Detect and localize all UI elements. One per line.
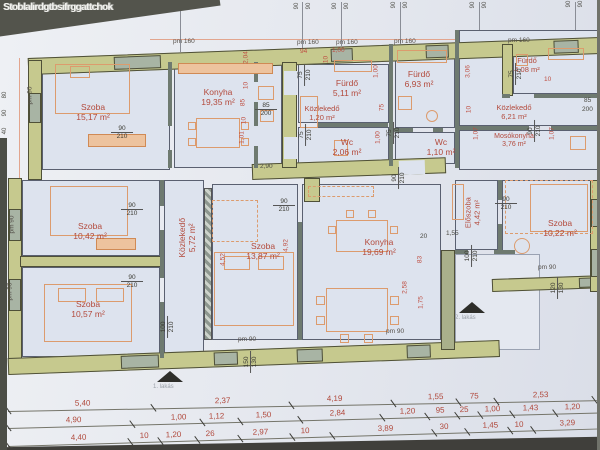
dim: 83 — [417, 248, 424, 272]
partition — [160, 180, 164, 206]
dim: 20 — [420, 233, 427, 240]
apartment-label: 1. lakás — [153, 384, 174, 390]
tick-label: 90 — [470, 0, 476, 13]
room-label: Konyha19,35 m² — [201, 88, 235, 108]
parapet-label: pm 160 — [394, 38, 416, 45]
tick-label: 80 — [2, 87, 8, 103]
door-size: 75210 — [386, 122, 402, 144]
furniture-chair — [340, 334, 349, 343]
window-size: 120130 — [550, 277, 566, 299]
door-size: 90210 — [111, 125, 133, 141]
furniture-lamp — [514, 238, 530, 254]
door-size: 90210 — [121, 274, 143, 290]
door-size: 90210 — [391, 167, 407, 189]
furniture-wardrobe — [212, 200, 258, 242]
window — [121, 354, 159, 368]
parapet-label: pm 160 — [508, 37, 530, 44]
dim: 10 — [323, 48, 330, 72]
furniture-toilet — [426, 110, 438, 122]
dim: 2,04 — [243, 46, 250, 70]
dim: 2,58 — [402, 276, 409, 300]
partition — [455, 30, 459, 168]
furniture-appliance — [258, 86, 274, 100]
furniture-closet — [452, 184, 464, 220]
dim: 85 — [584, 97, 591, 104]
parapet-label: pm 90 — [538, 264, 556, 271]
room-label: Konyha19,69 m² — [362, 238, 396, 258]
tick-label: 40 — [2, 123, 8, 139]
wall-left-lower — [8, 178, 22, 368]
dim: 1,01 — [239, 126, 246, 150]
furniture-table — [326, 288, 388, 332]
partition — [389, 44, 393, 166]
dim: 2,90 — [260, 163, 273, 170]
dim: 200 — [582, 106, 593, 113]
partition — [298, 222, 302, 340]
parapet-label: pm 90 — [386, 328, 404, 335]
dim: 1,07 — [549, 122, 556, 146]
furniture-chair — [316, 316, 325, 325]
room-label: Közlekedő6,21 m² — [496, 104, 531, 121]
tick-label: 90 — [391, 0, 397, 13]
room-label: Közlekedő1,20 m² — [304, 105, 339, 122]
furniture-chair — [390, 226, 398, 234]
dim: 75 — [379, 96, 386, 120]
parapet-label: pm 160 — [336, 39, 358, 46]
parapet-label: pm 90 — [238, 336, 256, 343]
furniture-chair — [364, 334, 373, 343]
partition — [254, 146, 258, 168]
tick-label: 90 — [2, 105, 8, 121]
entrance-marker-icon — [157, 371, 183, 382]
furniture-chair — [188, 138, 196, 146]
tick-label: 90 — [403, 0, 409, 13]
partition — [551, 126, 599, 130]
room-label: Szoba10,57 m² — [71, 300, 105, 320]
door-size: 90210 — [121, 202, 143, 218]
parapet-label: pm 90 — [9, 213, 16, 237]
entrance-marker-icon — [459, 302, 485, 313]
room-label: Szoba15,17 m² — [76, 103, 110, 123]
furniture-tub — [397, 50, 447, 63]
furniture-chair — [390, 316, 399, 325]
partition — [168, 150, 172, 168]
furniture-chair — [188, 122, 196, 130]
partition — [459, 126, 529, 130]
door-size: 85200 — [255, 102, 277, 118]
photo-edge-dark — [0, 138, 7, 450]
room-label: Szoba10,42 m² — [73, 222, 107, 242]
furniture-chair — [346, 210, 354, 218]
tick-label: 90 — [332, 0, 338, 14]
partition — [433, 128, 443, 132]
watermark: Stoblalirdgtbsifrggattchok — [3, 2, 112, 13]
door-size: 90210 — [527, 120, 543, 142]
door-size: 75210 — [298, 124, 314, 146]
door-size: 100210 — [464, 245, 480, 267]
furniture-counter — [178, 63, 273, 74]
parapet-label: pm 160 — [297, 39, 319, 46]
tick-label: 90 — [294, 0, 300, 14]
partition — [502, 94, 510, 98]
window — [406, 345, 430, 359]
window — [214, 352, 238, 366]
dim: 4,92 — [283, 234, 290, 258]
dim: 1,07 — [473, 122, 480, 146]
furniture-chair — [368, 210, 376, 218]
furniture-sink — [398, 96, 412, 110]
room-label: Wc2,06 m² — [333, 138, 362, 158]
door-size: 90210 — [495, 196, 517, 212]
room-label: Wc1,10 m² — [427, 138, 456, 158]
floor-plan-photo: Szoba15,17 m² Konyha19,35 m² Közlekedő1,… — [0, 0, 600, 450]
furniture-washer — [570, 136, 586, 150]
wall-left-upper — [28, 60, 42, 180]
furniture-table — [196, 118, 240, 148]
dim: 10 — [466, 98, 473, 122]
furniture-sink — [334, 60, 372, 72]
dim: 3,06 — [465, 60, 472, 84]
door-size: 75210 — [508, 63, 524, 85]
apartment-label: 2. lakás — [455, 315, 476, 321]
door-size: 75210 — [297, 64, 313, 86]
tick-label: 90 — [482, 0, 488, 13]
parapet-label: pm 90 — [27, 84, 34, 108]
window-size: 150130 — [243, 351, 259, 373]
furniture-pillow — [70, 66, 90, 78]
furniture-chair — [316, 296, 325, 305]
furniture-tub — [548, 48, 584, 60]
dim: 1,00 — [373, 60, 380, 84]
dim: 1,00 — [375, 126, 382, 150]
dim: 1,75 — [418, 291, 425, 315]
partition-hatched — [204, 188, 212, 340]
parapet-label: pm 90 — [7, 280, 14, 304]
furniture-chair — [390, 296, 399, 305]
door-size: 100210 — [160, 316, 176, 338]
furniture-counter — [308, 186, 374, 197]
partition — [160, 230, 164, 278]
room-label: Előszoba4,42 m² — [464, 183, 481, 243]
dim: 94 — [300, 48, 307, 55]
tick-label: 90 — [344, 0, 350, 14]
door-opening — [284, 71, 297, 95]
partition — [494, 250, 515, 254]
tick-label: 90 — [306, 0, 312, 14]
furniture-chair — [328, 226, 336, 234]
door-size: 90210 — [273, 198, 295, 214]
room-label: Szoba13,87 m² — [246, 242, 280, 262]
room-label: Szoba10,22 m² — [543, 219, 577, 239]
wall-vertical-right — [441, 250, 455, 350]
room-label: Közlekedő5,72 m² — [178, 208, 198, 268]
tick-label: 90 — [578, 0, 584, 12]
dim: 1,55 — [446, 230, 459, 237]
wall-between-szoba — [20, 256, 162, 267]
room-label: Fürdő6,93 m² — [405, 70, 434, 90]
partition — [498, 224, 502, 252]
door-opening — [284, 137, 297, 159]
room-label: Fürdő5,11 m² — [333, 79, 361, 99]
window — [297, 348, 323, 362]
partition — [168, 62, 172, 126]
dim: 4,52 — [220, 248, 227, 272]
tick-label: 90 — [566, 0, 572, 12]
dim: 1,00 — [332, 47, 345, 54]
wall-corridor — [282, 62, 297, 168]
dim: 10 — [544, 76, 551, 83]
parapet-label: pm 160 — [173, 38, 195, 45]
